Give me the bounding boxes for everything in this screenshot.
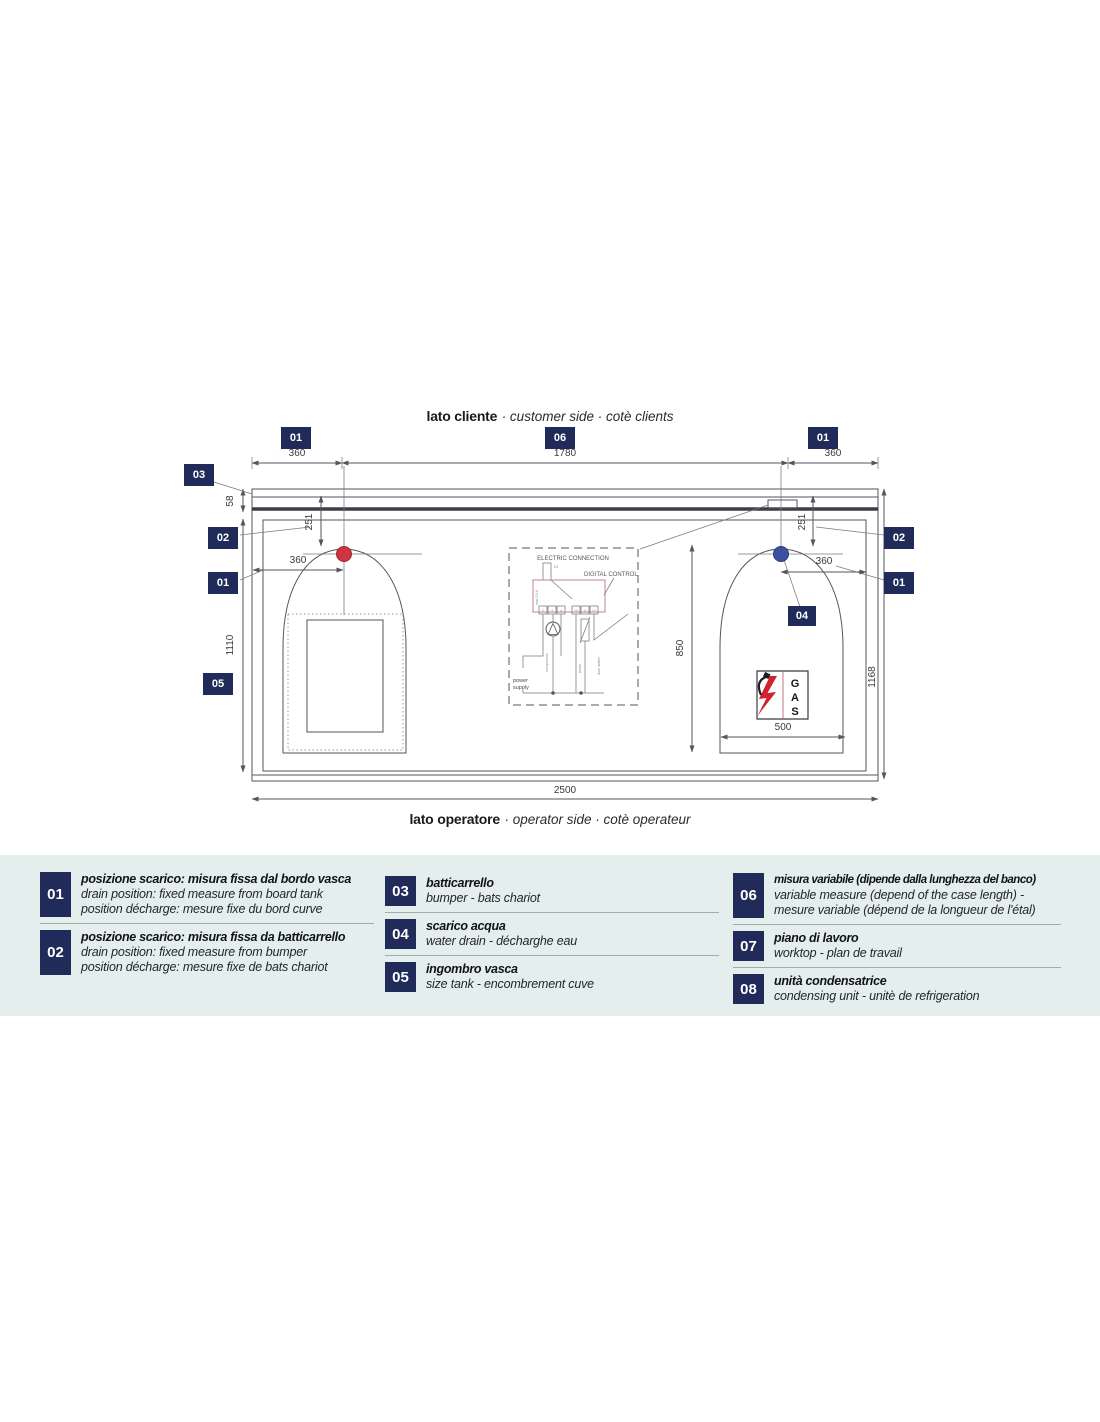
dim-depth-850: 850 [675,639,686,656]
legend-badge-07: 07 [733,931,764,961]
terminal-12: 12 [592,609,596,613]
gas-letter-g: G [791,678,800,690]
terminal-11: 11 [583,609,587,613]
marker-01-right: 01 [884,572,914,594]
legend-column-3: 06 misura variabile (dipende dalla lungh… [733,867,1061,1010]
legend-badge-03: 03 [385,876,416,906]
legend-06-line3: mesure variable (dépend de la longueur d… [774,903,1036,918]
dim-offset-left: 251 [304,513,315,530]
dim-band-58: 58 [225,495,236,507]
wire-label-3: door switch [597,657,601,675]
wire-label-2: probe [578,664,582,673]
legend-band: 01 posizione scarico: misura fissa dal b… [0,855,1100,1016]
mid-dimension: 850 [675,545,692,752]
dim-top-left: 360 [289,448,306,459]
marker-04-water-drain: 04 [788,606,816,626]
terminal-3: 3 [551,609,553,613]
wire-label-1: compressor [545,652,549,672]
legend-column-2: 03 batticarrello bumper - bats chariot 0… [385,870,719,998]
dim-drain-left: 360 [290,555,307,566]
legend-column-1: 01 posizione scarico: misura fissa dal b… [40,866,374,981]
legend-08-line2: condensing unit - unitè de refrigeration [774,989,979,1004]
marker-03-bumper: 03 [184,464,214,486]
legend-badge-06: 06 [733,873,764,918]
terminal-4: 4 [560,609,562,613]
legend-06-line1: misura variabile (dipende dalla lunghezz… [774,873,1036,888]
legend-item-01: 01 posizione scarico: misura fissa dal b… [40,866,374,924]
gas-letter-a: A [791,692,799,704]
legend-03-line1: batticarrello [426,876,540,891]
bottom-dimension: 2500 [252,785,878,799]
operator-side-title-bold: lato operatore [409,811,500,827]
legend-item-03: 03 batticarrello bumper - bats chariot [385,870,719,913]
schematic-wires: compressor probe door switch power suppl… [513,614,628,695]
marker-01-left: 01 [208,572,238,594]
legend-badge-01: 01 [40,872,71,917]
right-dimension: 1168 [867,489,884,779]
legend-04-line2: water drain - décharghe eau [426,934,577,949]
legend-05-line2: size tank - encombrement cuve [426,977,594,992]
dim-drain-right: 360 [816,556,833,567]
legend-badge-02: 02 [40,930,71,975]
legend-badge-04: 04 [385,919,416,949]
dim-top-right: 360 [825,448,842,459]
marker-01-top-left: 01 [281,427,311,449]
legend-02-line1: posizione scarico: misura fissa da batti… [81,930,345,945]
dim-unit-500: 500 [775,722,792,733]
legend-01-line2: drain position: fixed measure from board… [81,887,351,902]
gas-unit-icon: G A S [757,671,808,719]
technical-drawing: 360 1780 360 58 1110 251 360 850 [180,420,950,810]
legend-item-04: 04 scarico acqua water drain - décharghe… [385,913,719,956]
electric-connection-label: ELECTRIC CONNECTION [537,556,609,562]
dim-total-2500: 2500 [554,785,577,796]
relay-label: K1 [554,565,558,569]
drain-left-dot [337,547,352,562]
legend-07-line1: piano di lavoro [774,931,902,946]
drain-right-dot [774,547,789,562]
marker-06-top-center: 06 [545,427,575,449]
legend-02-line3: position décharge: mesure fixe de bats c… [81,960,345,975]
gas-letter-s: S [791,706,798,718]
legend-badge-05: 05 [385,962,416,992]
operator-side-title-sub: · operator side · cotè operateur [504,812,690,827]
page: { "colors": { "badge_navy": "#202b5a", "… [0,0,1100,1422]
legend-item-05: 05 ingombro vasca size tank - encombreme… [385,956,719,998]
legend-01-line1: posizione scarico: misura fissa dal bord… [81,872,351,887]
terminal-10: 10 [574,609,578,613]
top-dimensions: 360 1780 360 [252,448,878,469]
legend-item-07: 07 piano di lavoro worktop - plan de tra… [733,925,1061,968]
marker-02-right: 02 [884,527,914,549]
legend-item-08: 08 unità condensatrice condensing unit -… [733,968,1061,1010]
marker-02-left: 02 [208,527,238,549]
terminal-blocks: 2 3 4 10 11 12 [539,606,598,614]
digital-control-label: DIGITAL CONTROL [584,572,638,578]
legend-item-02: 02 posizione scarico: misura fissa da ba… [40,924,374,981]
power-supply-label-2: supply [513,685,529,691]
legend-item-06: 06 misura variabile (dipende dalla lungh… [733,867,1061,925]
legend-02-line2: drain position: fixed measure from bumpe… [81,945,345,960]
marker-05-tank: 05 [203,673,233,695]
legend-06-line2: variable measure (depend of the case len… [774,888,1036,903]
legend-03-line2: bumper - bats chariot [426,891,540,906]
dim-depth-1110: 1110 [225,634,236,655]
legend-07-line2: worktop - plan de travail [774,946,902,961]
marker-01-top-right: 01 [808,427,838,449]
dim-depth-1168: 1168 [867,666,878,688]
legend-04-line1: scarico acqua [426,919,577,934]
dim-offset-right: 251 [797,513,808,530]
legend-08-line1: unità condensatrice [774,974,979,989]
operator-side-title: lato operatore · operator side · cotè op… [0,811,1100,829]
rating-label: max 10 A [535,589,539,605]
legend-01-line3: position décharge: mesure fixe du bord c… [81,902,351,917]
electric-connection: ELECTRIC CONNECTION K1 max 10 A DIGITAL … [509,548,638,705]
badge-leaders [214,482,884,607]
dim-top-mid: 1780 [554,448,577,459]
legend-badge-08: 08 [733,974,764,1004]
power-supply-label-1: power [513,678,528,684]
legend-05-line1: ingombro vasca [426,962,594,977]
terminal-2: 2 [542,609,544,613]
